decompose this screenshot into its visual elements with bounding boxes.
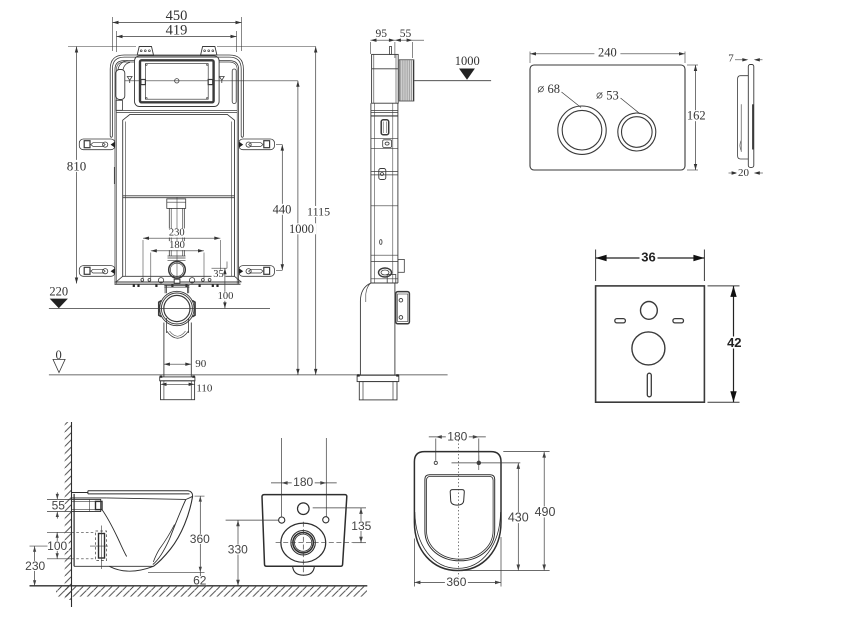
svg-text:360: 360 [190,532,210,546]
svg-text:1000: 1000 [289,222,314,236]
svg-text:100: 100 [47,539,67,553]
svg-text:135: 135 [351,519,371,533]
svg-text:1000: 1000 [455,54,480,68]
svg-text:180: 180 [293,475,313,489]
svg-text:62: 62 [193,574,207,588]
svg-text:440: 440 [273,202,292,216]
svg-text:35: 35 [213,269,224,280]
svg-text:0: 0 [55,348,61,362]
svg-text:36: 36 [641,250,655,265]
svg-text:55: 55 [52,498,66,512]
svg-text:240: 240 [598,46,617,60]
svg-text:419: 419 [166,22,188,38]
svg-text:7: 7 [728,52,734,64]
svg-text:230: 230 [169,228,185,239]
svg-text:220: 220 [49,284,68,298]
svg-text:53: 53 [606,88,619,102]
svg-text:430: 430 [508,511,529,525]
svg-text:68: 68 [548,82,561,96]
svg-text:360: 360 [446,575,466,589]
svg-text:1115: 1115 [307,205,330,219]
svg-text:490: 490 [535,505,556,519]
svg-text:100: 100 [218,291,234,302]
svg-text:180: 180 [169,240,185,251]
svg-text:230: 230 [25,559,45,573]
svg-text:95: 95 [376,28,388,40]
svg-text:20: 20 [738,167,750,179]
svg-text:90: 90 [195,358,207,370]
svg-text:110: 110 [196,382,213,394]
svg-text:162: 162 [687,109,706,123]
svg-text:330: 330 [228,543,248,557]
svg-text:42: 42 [727,335,741,350]
svg-text:180: 180 [447,430,467,444]
svg-text:810: 810 [67,158,87,173]
svg-text:55: 55 [400,28,412,40]
